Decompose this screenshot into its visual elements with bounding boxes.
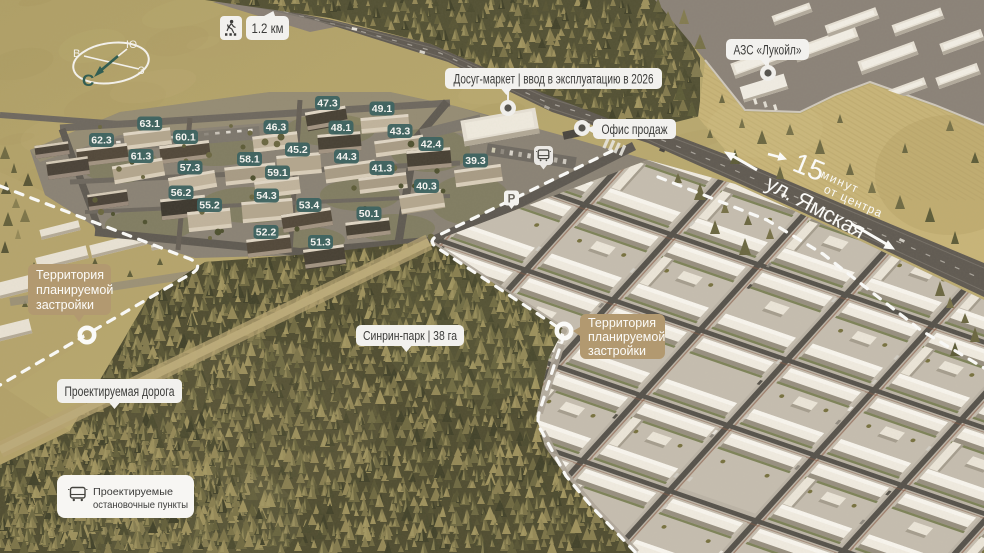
- svg-text:Проектируемая дорога: Проектируемая дорога: [65, 384, 175, 399]
- svg-text:44.3: 44.3: [336, 151, 357, 163]
- svg-text:63.1: 63.1: [139, 118, 160, 130]
- svg-text:56.2: 56.2: [171, 187, 192, 199]
- svg-text:46.3: 46.3: [266, 122, 287, 134]
- svg-text:застройки: застройки: [588, 344, 646, 358]
- svg-text:55.2: 55.2: [199, 200, 220, 212]
- svg-text:48.1: 48.1: [331, 122, 352, 134]
- svg-text:Синрин-парк | 38 га: Синрин-парк | 38 га: [363, 328, 458, 343]
- svg-text:39.3: 39.3: [465, 155, 486, 167]
- svg-text:Территория: Территория: [36, 268, 104, 282]
- svg-text:Офис продаж: Офис продаж: [602, 122, 668, 137]
- svg-text:52.2: 52.2: [256, 227, 277, 239]
- svg-text:Территория: Территория: [588, 316, 656, 330]
- svg-text:60.1: 60.1: [175, 132, 196, 144]
- svg-text:планируемой: планируемой: [588, 330, 665, 344]
- svg-text:53.4: 53.4: [299, 200, 320, 212]
- svg-text:45.2: 45.2: [287, 144, 308, 156]
- svg-text:1.2 км: 1.2 км: [252, 21, 284, 36]
- svg-text:47.3: 47.3: [317, 98, 338, 110]
- svg-text:43.3: 43.3: [390, 126, 411, 138]
- svg-text:51.3: 51.3: [310, 237, 331, 249]
- svg-text:62.3: 62.3: [91, 135, 112, 147]
- svg-text:АЗС «Лукойл»: АЗС «Лукойл»: [734, 42, 802, 57]
- svg-text:остановочные пункты: остановочные пункты: [93, 499, 188, 511]
- svg-text:Досуг-маркет | ввод в эксплуат: Досуг-маркет | ввод в эксплуатацию в 202…: [454, 71, 654, 86]
- svg-text:58.1: 58.1: [239, 154, 260, 166]
- svg-text:57.3: 57.3: [180, 162, 201, 174]
- svg-text:54.3: 54.3: [256, 190, 277, 202]
- svg-text:застройки: застройки: [36, 298, 94, 312]
- svg-text:42.4: 42.4: [421, 139, 442, 151]
- svg-text:50.1: 50.1: [359, 208, 380, 220]
- svg-text:40.3: 40.3: [416, 181, 437, 193]
- svg-text:59.1: 59.1: [267, 167, 288, 179]
- svg-text:Проектируемые: Проектируемые: [93, 486, 173, 498]
- svg-text:61.3: 61.3: [131, 151, 152, 163]
- svg-text:41.3: 41.3: [372, 163, 393, 175]
- svg-text:планируемой: планируемой: [36, 283, 113, 297]
- svg-text:49.1: 49.1: [372, 103, 393, 115]
